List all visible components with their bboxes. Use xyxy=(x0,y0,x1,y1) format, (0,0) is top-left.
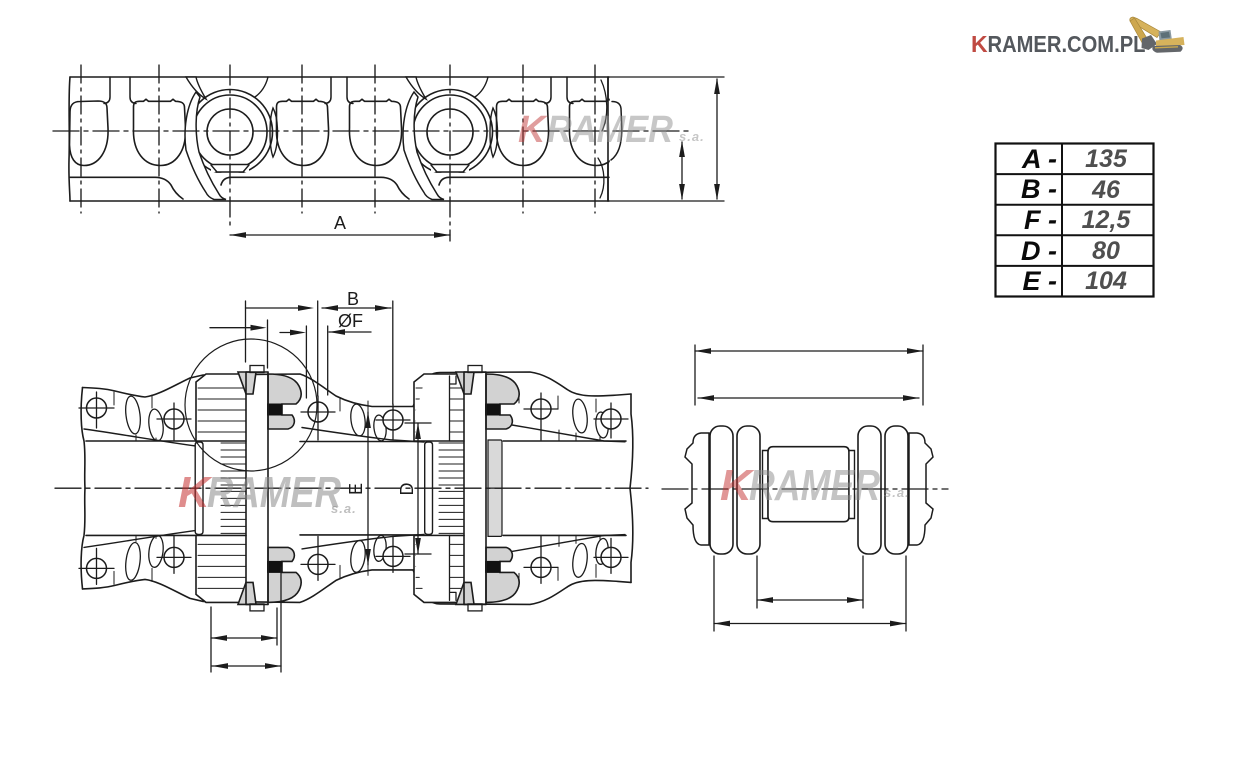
svg-text:80: 80 xyxy=(1092,237,1120,265)
svg-text:B -: B - xyxy=(1021,174,1057,204)
svg-text:12,5: 12,5 xyxy=(1082,206,1132,234)
svg-text:E: E xyxy=(346,483,366,495)
svg-text:D: D xyxy=(397,483,417,496)
svg-text:s.a.: s.a. xyxy=(679,129,705,144)
svg-text:ØF: ØF xyxy=(338,311,363,331)
svg-text:135: 135 xyxy=(1085,145,1128,173)
svg-text:s.a.: s.a. xyxy=(884,485,910,500)
svg-text:F -: F - xyxy=(1024,205,1057,235)
svg-text:K: K xyxy=(518,109,548,151)
svg-text:K: K xyxy=(971,31,988,57)
svg-text:A -: A - xyxy=(1021,144,1057,174)
svg-text:104: 104 xyxy=(1085,267,1127,295)
svg-text:RAMER.COM.PL: RAMER.COM.PL xyxy=(988,31,1146,57)
svg-text:A: A xyxy=(334,213,346,233)
svg-text:B: B xyxy=(347,289,359,309)
svg-text:s.a.: s.a. xyxy=(331,501,357,516)
svg-text:E -: E - xyxy=(1022,266,1057,296)
svg-text:46: 46 xyxy=(1091,176,1121,204)
svg-text:RAMER: RAMER xyxy=(547,109,674,151)
svg-text:D -: D - xyxy=(1021,236,1057,266)
svg-text:RAMER: RAMER xyxy=(207,468,341,517)
svg-text:RAMER: RAMER xyxy=(749,461,880,510)
